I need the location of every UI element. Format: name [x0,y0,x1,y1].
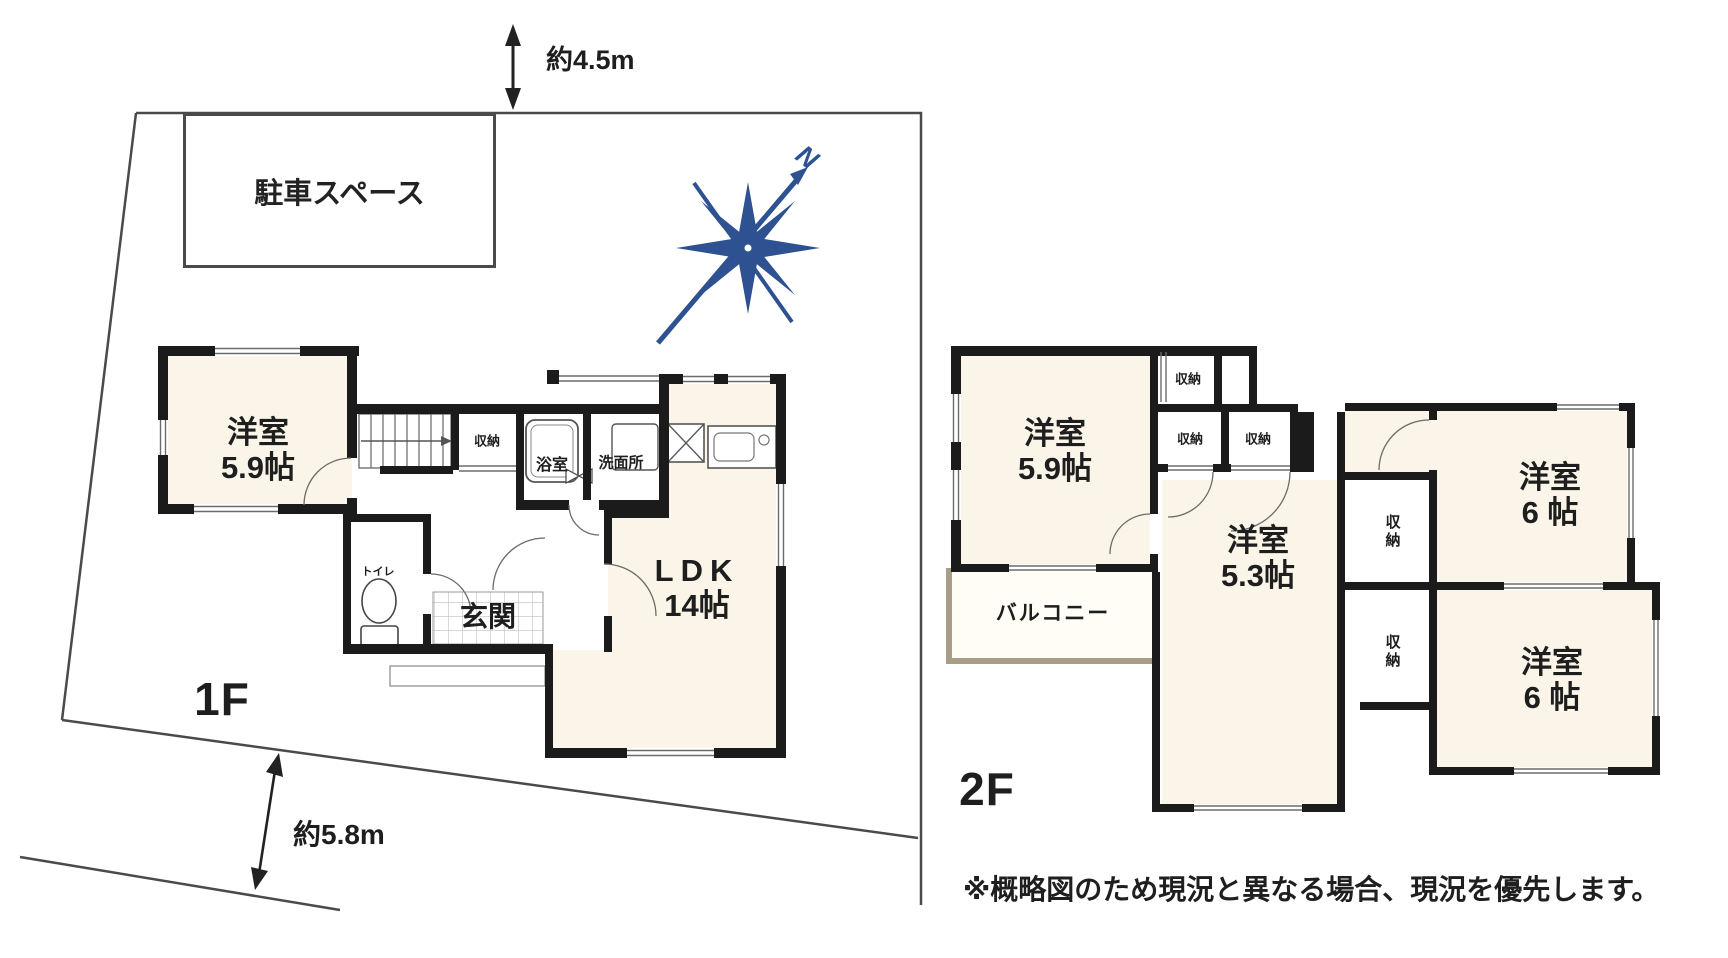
room-label-f1-closet: 収納 [474,435,500,450]
room-label-f1-washroom: 洗面所 [598,456,643,473]
toilet-icon [361,579,398,646]
room-label-f1-toilet: トイレ [362,566,395,578]
disclaimer-note: ※概略図のため現況と異なる場合、現況を優先します。 [963,868,1659,908]
room-label-f2-yoshitsu59: 洋室 5.9帖 [1018,416,1092,486]
room-label-f2-balcony: バルコニー [996,602,1111,626]
room-label-f1-ldk: LDK 14帖 [655,553,740,623]
floor2-label: 2F [959,764,1015,816]
floor1-label: 1F [194,674,250,726]
compass-icon [658,167,820,343]
room-label-f2-closet-d: 収納 [1383,514,1400,550]
room-label-f1-yoshitsu: 洋室 5.9帖 [221,415,295,485]
room-label-f2-yoshitsu6a: 洋室 6 帖 [1519,460,1581,530]
room-label-f2-yoshitsu6b: 洋室 6 帖 [1521,645,1583,715]
room-label-f2-closet-a: 収納 [1175,373,1201,388]
room-label-f2-yoshitsu53: 洋室 5.3帖 [1221,523,1295,593]
dimension-arrow-top [505,24,521,110]
dimension-top-label: 約4.5m [546,38,635,77]
room-label-f2-closet-b: 収納 [1177,433,1203,448]
floorplan-canvas: 駐車スペース 約4.5m 約5.8m N 洋室 5.9帖 LDK 14帖 玄関 … [0,0,1728,958]
parking-space-label: 駐車スペース [254,170,425,212]
room-label-f1-genkan: 玄関 [460,601,516,633]
room-label-f1-bath: 浴室 [536,457,568,475]
kitchen-icons [668,424,776,468]
room-label-f2-closet-c: 収納 [1245,433,1271,448]
stairs-icon [359,414,452,468]
dimension-arrow-side [251,753,283,890]
parking-space-box: 駐車スペース [183,113,496,268]
room-label-f2-closet-e: 収納 [1383,634,1400,670]
dimension-side-label: 約5.8m [293,813,385,853]
